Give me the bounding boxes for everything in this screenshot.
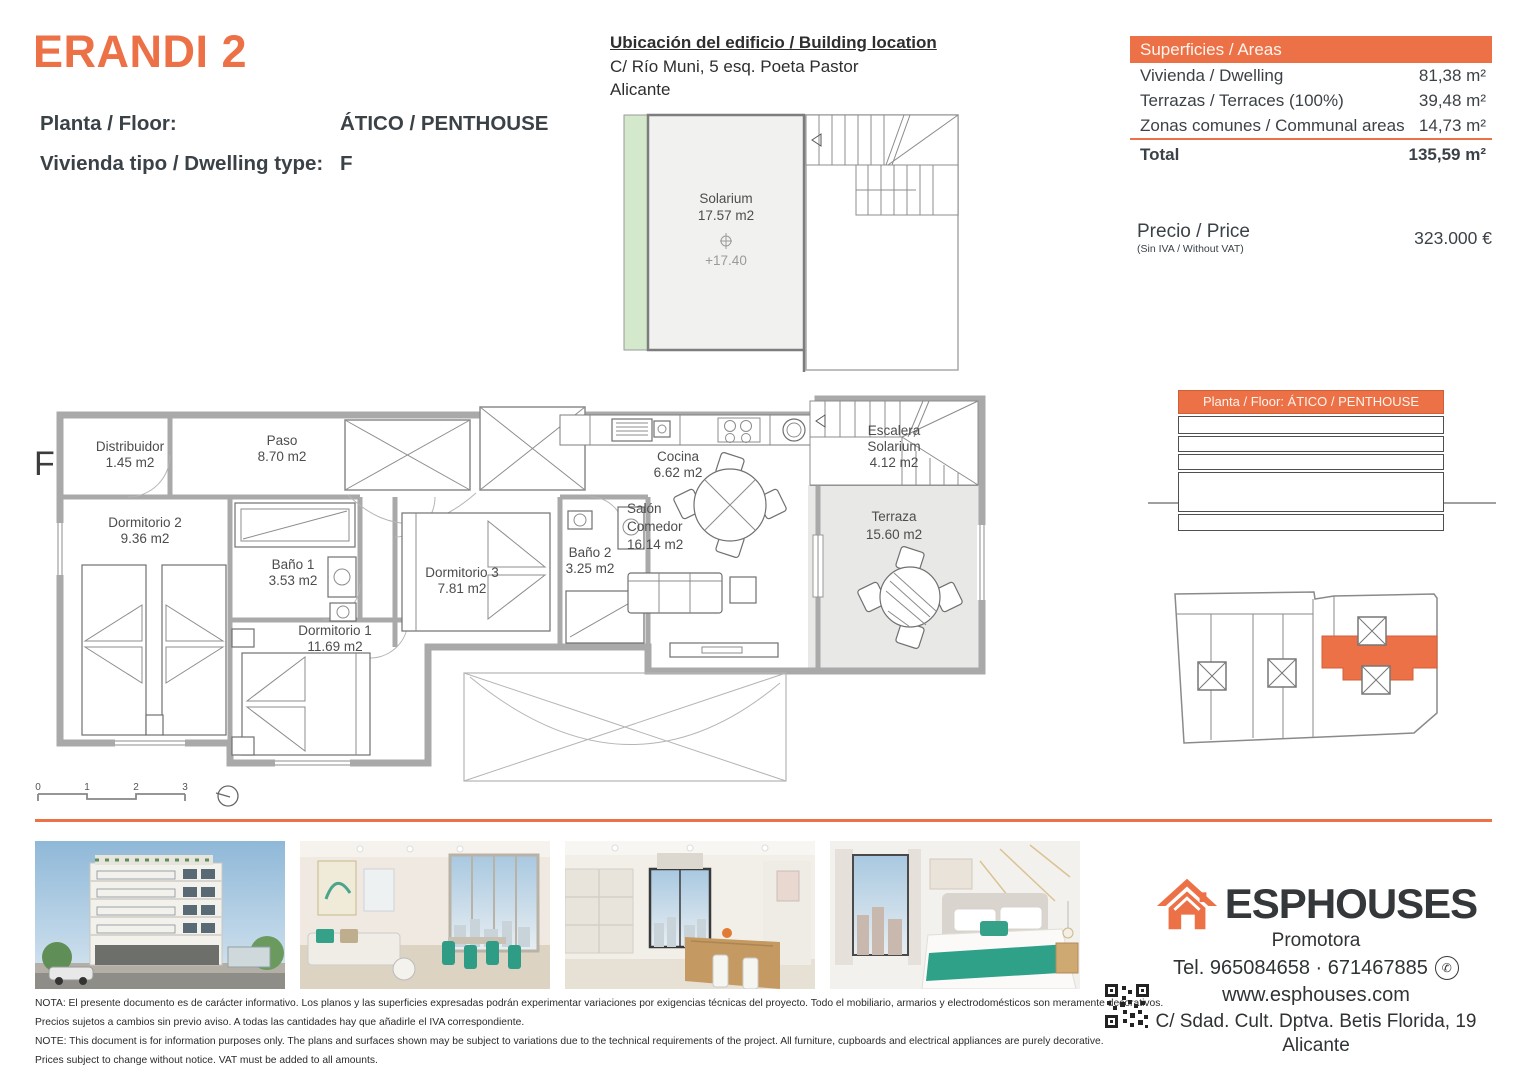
brand-subtitle: Promotora [1272,930,1361,952]
areas-row-value: 81,38 m² [1419,66,1486,86]
floor-selector-header: Planta / Floor: ÁTICO / PENTHOUSE [1178,390,1444,414]
room-area: 9.36 m2 [121,531,170,546]
brand-name: ESPHOUSES [1225,880,1477,928]
room-label: Cocina [657,449,700,464]
disclaimer-line: Precios sujetos a cambios sin previo avi… [35,1013,1110,1032]
room-label: Dormitorio 1 [298,623,372,638]
website-line: www.esphouses.com [1222,984,1410,1007]
divider-rule [35,819,1492,822]
address-street: C/ Sdad. Cult. Dptva. Betis Florida, 19 [1155,1011,1476,1033]
location-city: Alicante [610,80,670,100]
site-plan [1165,588,1470,773]
address-city: Alicante [1282,1035,1350,1057]
photo-building-exterior [35,841,285,989]
areas-row-label: Vivienda / Dwelling [1140,66,1283,86]
room-area: 3.53 m2 [269,573,318,588]
room-area: 4.12 m2 [870,455,919,470]
room-label: Baño 2 [569,545,612,560]
location-title: Ubicación del edificio / Building locati… [610,33,937,53]
room-label: Solarium [867,439,920,454]
wardrobe-symbols [345,407,585,490]
phone-line: Tel. 965084658 · 671467885 ✆ [1173,956,1459,980]
photo-kitchen [565,841,815,989]
photo-living-room [300,841,550,989]
solarium-room-label: Solarium [699,191,752,206]
areas-row-total: Total 135,59 m² [1130,140,1492,169]
solarium-plan: Solarium 17.57 m2 +17.40 [616,110,1006,380]
scale-tick: 1 [84,782,90,793]
disclaimer-line: Prices subject to change without notice.… [35,1051,1110,1070]
areas-row-value: 14,73 m² [1419,116,1486,136]
page-title: ERANDI 2 [33,26,247,78]
solarium-area-label: 17.57 m2 [698,208,754,223]
whatsapp-icon: ✆ [1435,956,1459,980]
website-url: www.esphouses.com [1222,984,1410,1007]
floor-selector-table: Planta / Floor: ÁTICO / PENTHOUSE [1178,390,1444,531]
location-address: C/ Río Muni, 5 esq. Poeta Pastor [610,57,859,77]
areas-row-terraces: Terrazas / Terraces (100%) 39,48 m² [1130,88,1492,113]
photo-bedroom [830,841,1080,989]
areas-row-communal: Zonas comunes / Communal areas 14,73 m² [1130,113,1492,140]
room-label: Distribuidor [96,439,165,454]
brand-logo: ESPHOUSES [1155,876,1477,932]
floor-row [1178,454,1444,470]
dormitorio2-furniture [82,565,226,735]
room-area: 6.62 m2 [654,465,703,480]
floor-row [1178,472,1444,512]
room-label: Dormitorio 2 [108,515,182,530]
lower-roof-outline [464,673,786,781]
disclaimer-block: NOTA: El presente documento es de caráct… [35,994,1110,1070]
room-area: 11.69 m2 [307,639,362,654]
disclaimer-line: NOTA: El presente documento es de caráct… [35,994,1110,1013]
floor-label: Planta / Floor: [40,112,177,136]
solarium-level-label: +17.40 [705,253,747,268]
scale-tick: 3 [182,782,188,793]
room-label: Paso [267,433,298,448]
areas-total-label: Total [1140,145,1179,165]
room-label: Salón [627,501,662,516]
floor-value: ÁTICO / PENTHOUSE [340,112,548,136]
compass-icon [216,786,238,806]
room-label: Baño 1 [272,557,315,572]
room-area: 8.70 m2 [258,449,307,464]
scale-tick: 0 [35,782,41,793]
esphouses-house-icon [1155,876,1219,932]
footer-brand-block: ESPHOUSES Promotora Tel. 965084658 · 671… [1140,876,1492,1057]
price-value: 323.000 € [1130,228,1492,249]
room-area: 7.81 m2 [438,581,487,596]
room-label: Dormitorio 3 [425,565,499,580]
room-area: 1.45 m2 [106,455,155,470]
floor-row [1178,416,1444,434]
areas-total-value: 135,59 m² [1409,145,1487,165]
areas-row-dwelling: Vivienda / Dwelling 81,38 m² [1130,63,1492,88]
areas-table: Superficies / Areas Vivienda / Dwelling … [1130,36,1492,169]
brochure-page: ERANDI 2 Planta / Floor: ÁTICO / PENTHOU… [0,0,1527,1080]
room-label: Escalera [868,423,921,438]
disclaimer-line: NOTE: This document is for information p… [35,1032,1110,1051]
floor-row [1178,514,1444,531]
dwelling-type-label: Vivienda tipo / Dwelling type: [40,152,323,176]
main-floor-plan: F Distribuidor 1.45 m2 Dormitorio 2 9.36… [30,385,1010,785]
address-city-line: Alicante [1282,1035,1350,1057]
areas-row-label: Terrazas / Terraces (100%) [1140,91,1344,111]
areas-table-header: Superficies / Areas [1130,36,1492,63]
room-area: 3.25 m2 [566,561,615,576]
scale-bar: 0 1 2 3 [30,780,260,810]
phone-numbers: Tel. 965084658 · 671467885 [1173,957,1428,980]
room-label: Comedor [627,519,683,534]
room-area: 16.14 m2 [627,537,683,552]
room-area: 15.60 m2 [866,527,922,542]
dwelling-type-value: F [340,152,353,176]
room-label: Terraza [871,509,917,524]
areas-row-label: Zonas comunes / Communal areas [1140,116,1405,136]
plan-type-letter: F [34,445,55,483]
areas-row-value: 39,48 m² [1419,91,1486,111]
kitchen-counter [560,415,818,445]
scale-tick: 2 [133,782,139,793]
address-line: C/ Sdad. Cult. Dptva. Betis Florida, 19 [1155,1011,1476,1033]
floor-row [1178,436,1444,452]
